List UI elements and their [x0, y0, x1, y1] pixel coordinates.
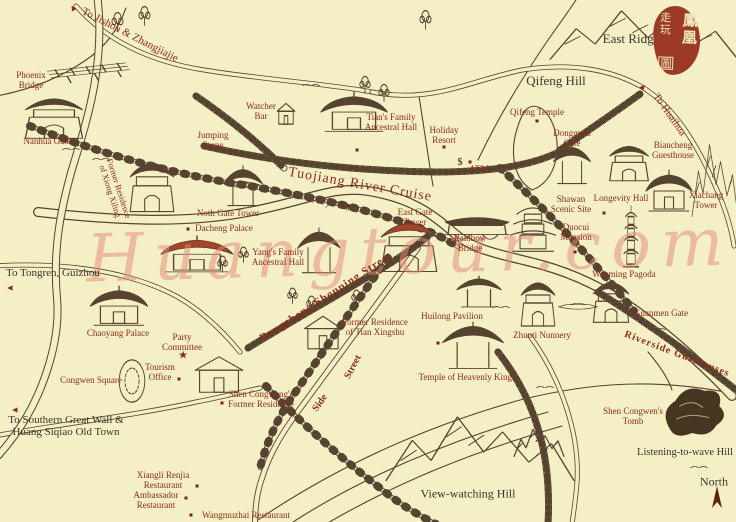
triangle-marker: ▲	[67, 2, 79, 14]
dot-marker	[185, 497, 188, 500]
dot-marker	[574, 251, 577, 254]
dot-marker	[603, 212, 606, 215]
north-arrow-marker	[710, 486, 724, 514]
fenghuang-tourist-map: Huangtour.com To Jishou & ZhangjiajiePho…	[0, 0, 736, 522]
dot-marker	[196, 485, 199, 488]
dot-marker	[437, 342, 440, 345]
triangle-marker: ▲	[6, 284, 15, 293]
dot-marker	[536, 120, 539, 123]
dot-marker	[347, 205, 350, 208]
seal-character-tu: 圖	[658, 56, 673, 70]
seal-characters-fenghuang: 鳳凰	[681, 12, 697, 47]
star-marker: ★	[178, 351, 188, 362]
map-markers-layer: ▲▲▲▲★$	[0, 0, 736, 522]
dot-marker	[178, 378, 181, 381]
dot-marker	[190, 514, 193, 517]
dot-marker	[187, 228, 190, 231]
dot-marker	[443, 146, 446, 149]
dollar-marker: $	[458, 158, 463, 168]
dot-marker	[221, 402, 224, 405]
dot-marker	[356, 149, 359, 152]
triangle-marker: ▲	[11, 406, 20, 415]
dot-marker	[469, 161, 472, 164]
seal-characters-zouwan: 走玩	[659, 11, 671, 35]
triangle-marker: ▲	[637, 81, 650, 94]
